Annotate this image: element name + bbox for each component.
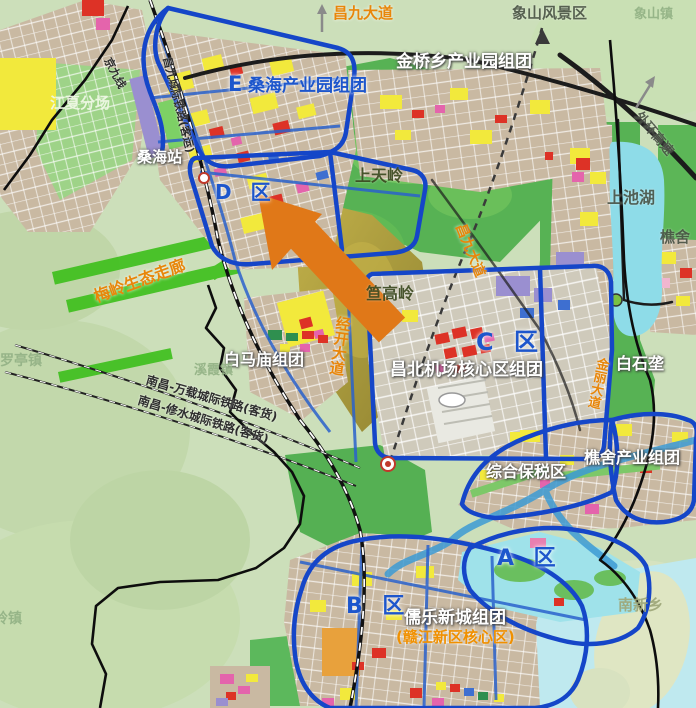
label-zone-d: D 区 (215, 182, 277, 202)
label-bonded-zone: 综合保税区 (486, 464, 566, 480)
label-jiangxia: 江夏分场 (50, 96, 110, 111)
label-jinqiao-park: 金桥乡产业园组团 (396, 54, 532, 71)
label-xiangshan-scenic: 象山风景区 (512, 6, 587, 21)
label-ling-town: 岭镇 (0, 612, 22, 626)
label-shangchi-lake: 上池湖 (607, 190, 655, 206)
label-rulexincheng: 儒乐新城组团 (404, 610, 506, 627)
label-baishilong: 白石垄 (616, 356, 664, 372)
label-changjiu-avenue-top: 昌九大道 (333, 6, 393, 21)
urban-bottomleft-cluster (210, 666, 270, 708)
label-sanghai-station: 桑海站 (137, 150, 182, 165)
label-qiaoshe-industrial: 樵舍产业组团 (584, 450, 680, 466)
label-ganjiang-core: (赣江新区核心区) (396, 630, 515, 645)
label-sanghai-park: 桑海产业园组团 (248, 78, 367, 95)
label-nanxin-township: 南新乡 (618, 598, 663, 613)
label-zone-c: C 区 (476, 330, 544, 354)
label-qiaoshe-town: 樵舍 (660, 230, 690, 245)
label-zone-a: A 区 (497, 548, 562, 570)
shangchi-lake-water (610, 142, 665, 336)
label-dagaoling: 笪高岭 (366, 286, 414, 302)
label-xixia-town: 溪霞镇 (194, 364, 233, 377)
label-zone-e: E (228, 74, 242, 95)
label-luoting-town: 罗亭镇 (0, 354, 42, 368)
label-zone-b: B 区 (346, 596, 410, 618)
planning-map-canvas[interactable]: 昌九大道 象山风景区 象山镇 金桥乡产业园组团 E 桑海产业园组团 江夏分场 京… (0, 0, 696, 708)
airport-terminal-oval (439, 393, 465, 407)
label-baimamiao: 白马庙组团 (224, 352, 304, 368)
label-changbei-airport: 昌北机场核心区组团 (390, 362, 543, 379)
label-shangtianling: 上天岭 (355, 168, 403, 184)
label-xiangshan-town: 象山镇 (634, 8, 673, 21)
